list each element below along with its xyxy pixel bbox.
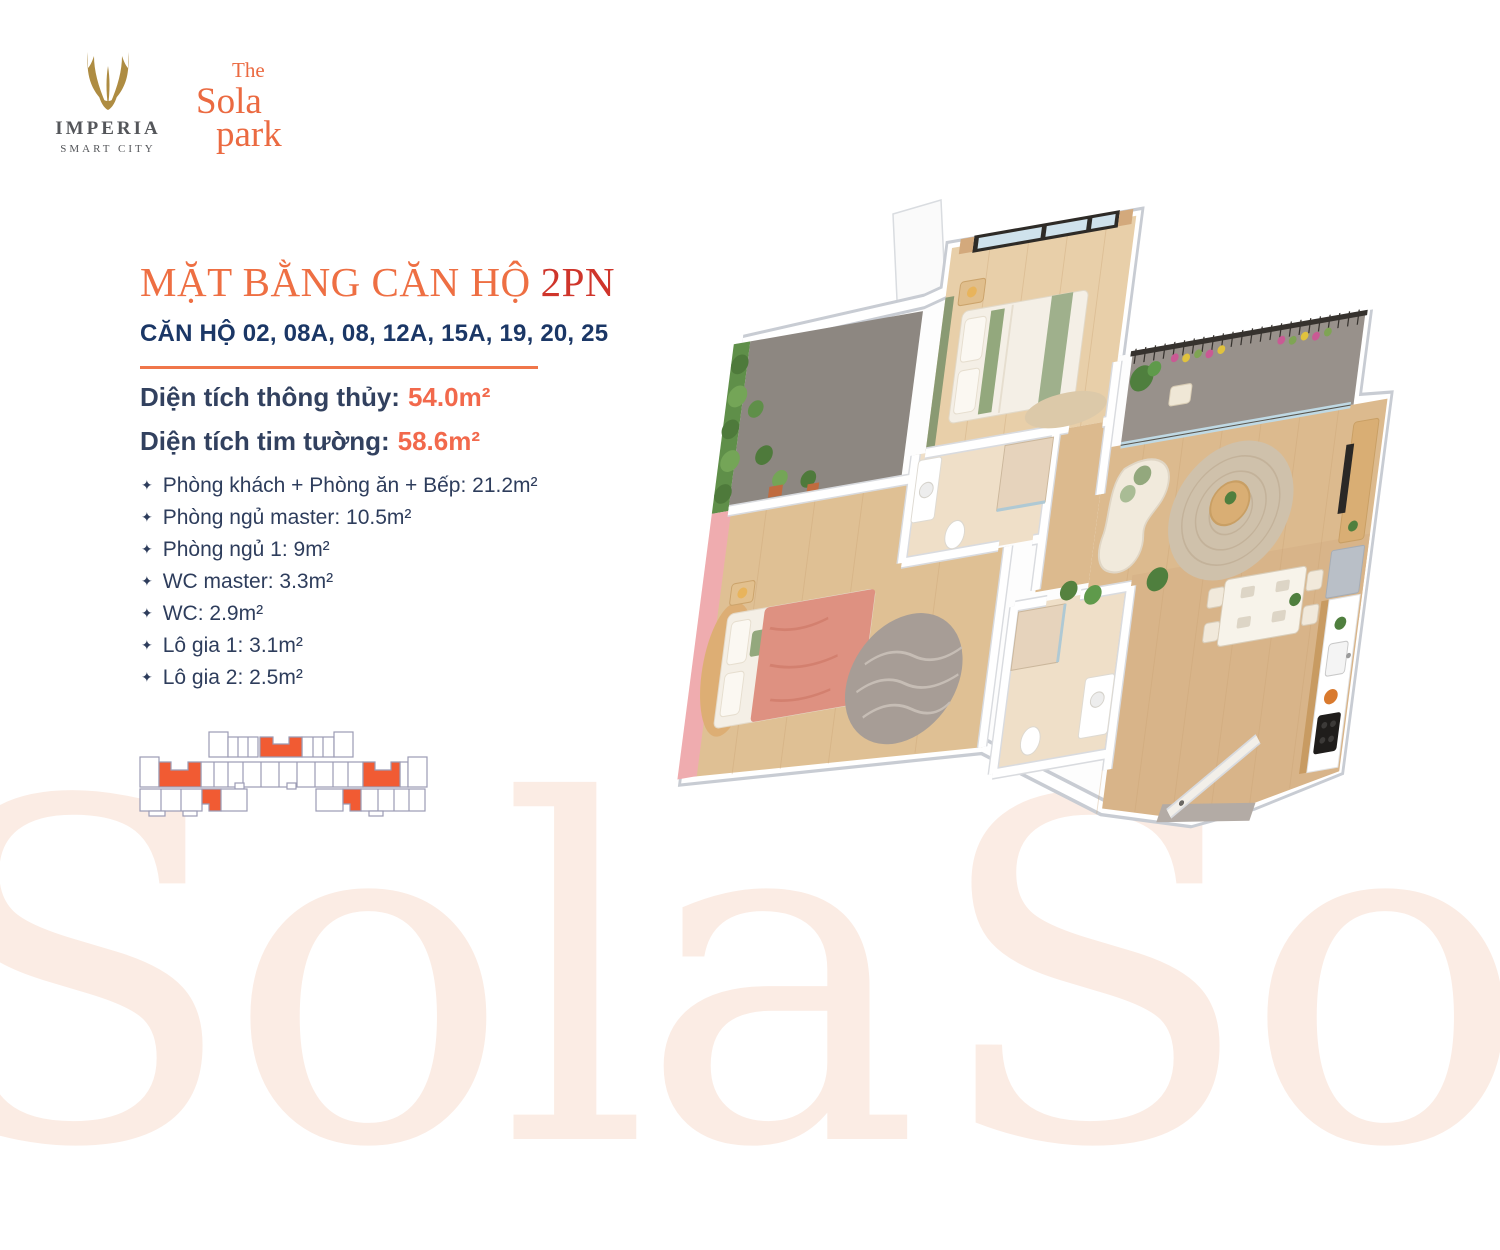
area-line: Diện tích tim tường:58.6m² — [140, 426, 490, 457]
sola-park-logo: The Sola park — [190, 60, 310, 153]
area-figures: Diện tích thông thủy:54.0m² Diện tích ti… — [140, 382, 490, 470]
page-title-suffix: 2PN — [541, 259, 615, 305]
page-title: MẶT BẰNG CĂN HỘ2PN — [140, 258, 615, 306]
star-bullet-icon: ✦ — [141, 573, 153, 589]
page-title-main: MẶT BẰNG CĂN HỘ — [140, 259, 531, 305]
balcony-chair — [1168, 383, 1192, 406]
star-bullet-icon: ✦ — [141, 669, 153, 685]
list-item: ✦WC master: 3.3m² — [141, 566, 538, 598]
area-line: Diện tích thông thủy:54.0m² — [140, 382, 490, 413]
curtain — [1118, 209, 1134, 227]
imperia-name: IMPERIA — [48, 118, 168, 140]
star-bullet-icon: ✦ — [141, 605, 153, 621]
list-item: ✦Phòng khách + Phòng ăn + Bếp: 21.2m² — [141, 470, 538, 502]
star-bullet-icon: ✦ — [141, 637, 153, 653]
area-value: 54.0m² — [408, 382, 490, 412]
list-item: ✦Phòng ngủ master: 10.5m² — [141, 502, 538, 534]
fridge — [1326, 545, 1365, 598]
list-item: ✦Lô gia 2: 2.5m² — [141, 662, 538, 694]
building-key-plan — [131, 726, 435, 822]
list-item: ✦Phòng ngủ 1: 9m² — [141, 534, 538, 566]
room-area-list: ✦Phòng khách + Phòng ăn + Bếp: 21.2m² ✦P… — [141, 470, 538, 694]
list-item: ✦WC: 2.9m² — [141, 598, 538, 630]
list-item: ✦Lô gia 1: 3.1m² — [141, 630, 538, 662]
apartment-list-subtitle: CĂN HỘ 02, 08A, 08, 12A, 15A, 19, 20, 25 — [140, 320, 615, 348]
star-bullet-icon: ✦ — [141, 477, 153, 493]
area-label: Diện tích thông thủy: — [140, 382, 400, 412]
star-bullet-icon: ✦ — [141, 509, 153, 525]
sola-logo-park: park — [216, 116, 310, 153]
area-label: Diện tích tim tường: — [140, 426, 390, 456]
imperia-logo: IMPERIA SMART CITY — [48, 52, 168, 155]
area-value: 58.6m² — [398, 426, 480, 456]
star-bullet-icon: ✦ — [141, 541, 153, 557]
imperia-tulip-icon — [80, 52, 136, 114]
sola-logo-the: The — [232, 60, 310, 81]
imperia-tagline: SMART CITY — [48, 143, 168, 155]
orange-divider — [140, 366, 538, 369]
curtain — [959, 237, 975, 255]
